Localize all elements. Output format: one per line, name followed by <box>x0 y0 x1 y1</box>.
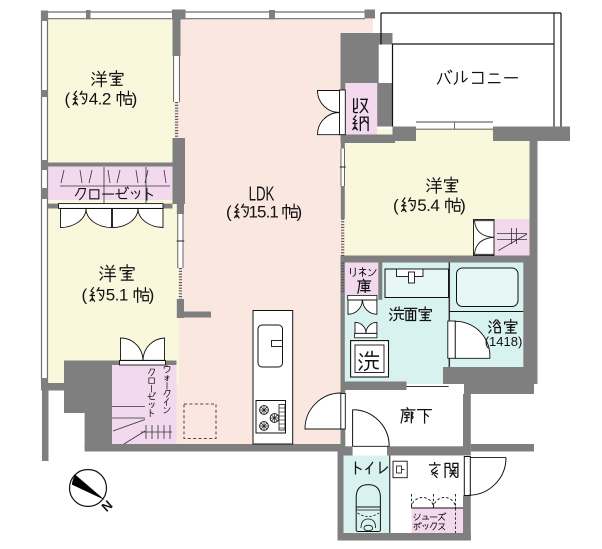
svg-text:(: ( <box>226 202 232 221</box>
svg-text:): ) <box>149 286 155 305</box>
svg-text:4.2: 4.2 <box>89 89 111 108</box>
svg-text:5.1: 5.1 <box>106 286 128 305</box>
svg-text:(: ( <box>65 89 71 108</box>
svg-text:): ) <box>132 89 138 108</box>
svg-text:(1418): (1418) <box>485 334 523 349</box>
svg-text:): ) <box>297 202 303 221</box>
svg-text:(: ( <box>393 196 399 215</box>
svg-text:(: ( <box>82 286 88 305</box>
svg-text:): ) <box>460 196 466 215</box>
svg-text:15.1: 15.1 <box>249 202 279 221</box>
svg-text:5.4: 5.4 <box>417 196 439 215</box>
